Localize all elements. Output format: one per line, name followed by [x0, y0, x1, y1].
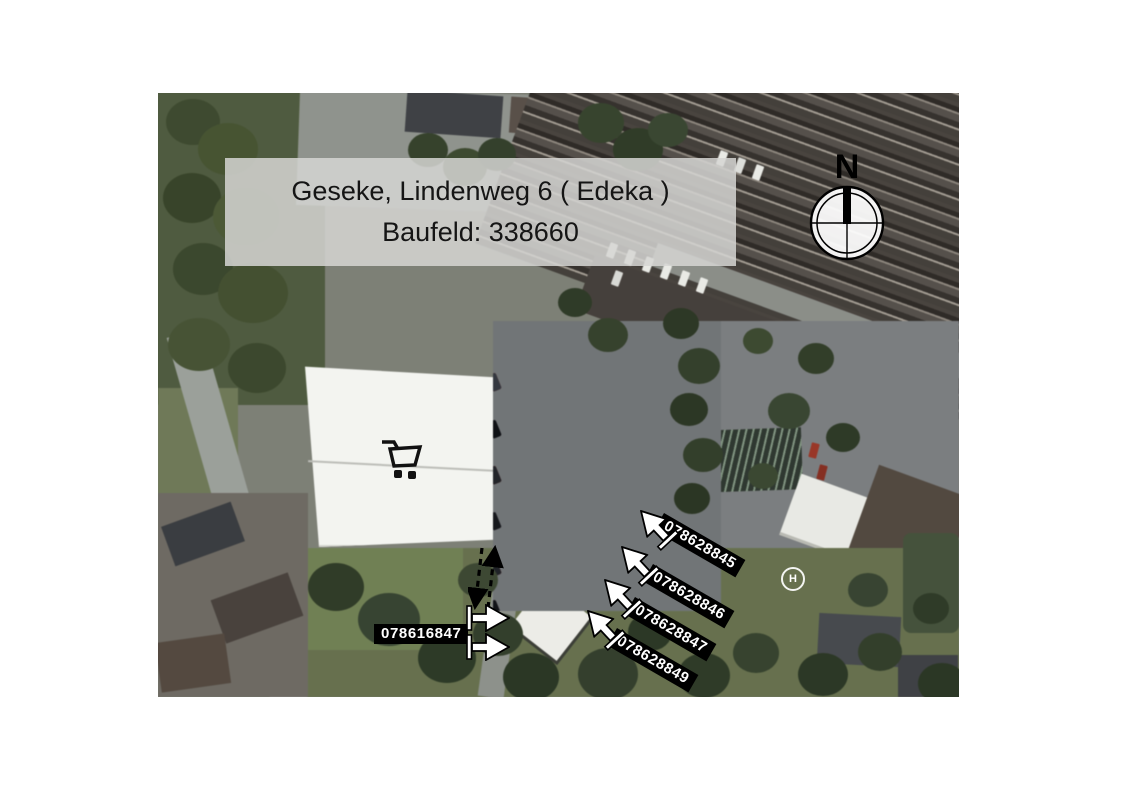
compass-north-icon: N — [806, 147, 888, 266]
tree — [826, 423, 860, 452]
shopping-cart-icon — [379, 432, 425, 482]
tree — [218, 263, 288, 323]
tree — [918, 663, 959, 697]
tree — [858, 633, 902, 671]
tree — [748, 463, 778, 489]
site-title-overlay: Geseke, Lindenweg 6 ( Edeka ) Baufeld: 3… — [225, 158, 736, 266]
tree — [913, 593, 949, 624]
leader-arrow-icon — [466, 633, 510, 661]
helipad-letter: H — [789, 573, 797, 585]
site-address: Geseke, Lindenweg 6 ( Edeka ) — [225, 171, 736, 212]
dashed-two-way-arrow-icon — [468, 543, 504, 613]
car — [493, 373, 502, 392]
tree — [503, 653, 559, 697]
car — [493, 466, 502, 485]
tree — [798, 653, 848, 696]
marker-label-078616847: 078616847 — [374, 624, 468, 644]
tree — [768, 393, 810, 429]
car — [493, 420, 502, 439]
tree — [308, 563, 364, 611]
tree — [663, 308, 699, 339]
tree — [558, 288, 592, 317]
car — [493, 512, 502, 531]
compass-north-label: N — [835, 148, 860, 186]
helipad-marking: H — [781, 567, 805, 591]
leader-arrow-icon — [466, 604, 510, 632]
tree — [743, 328, 773, 354]
tree — [733, 633, 779, 673]
tree — [228, 343, 286, 393]
tree — [168, 318, 230, 371]
tree — [674, 483, 710, 514]
site-baufeld: Baufeld: 338660 — [225, 212, 736, 253]
tree — [670, 393, 708, 426]
tree — [678, 348, 720, 384]
tree — [798, 343, 834, 374]
building-roof — [405, 93, 504, 138]
site-plan-page: H Geseke, Lindenweg 6 ( Edeka ) Baufeld:… — [0, 0, 1124, 795]
building-roof — [158, 633, 231, 692]
